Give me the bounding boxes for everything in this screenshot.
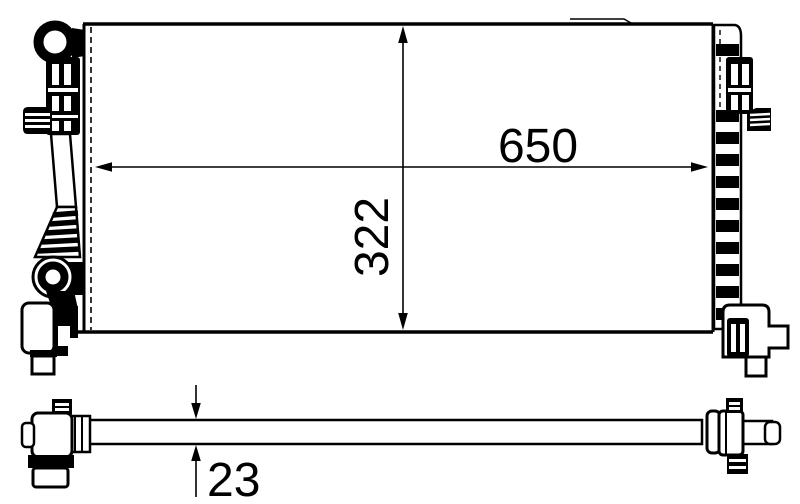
side-core-profile [88,420,702,444]
left-ribbed-clip [23,107,52,134]
right-upper-bracket [726,57,753,114]
dim-height: 322 [346,26,408,330]
left-channel [51,134,76,207]
right-foot-peg [746,357,766,376]
arrow-right-icon [691,162,708,172]
technical-drawing-canvas: 650 322 23 [0,0,800,504]
arrow-left-icon [95,162,112,172]
inlet-port [39,26,72,59]
radiator-core [75,19,713,332]
dim-width-label: 650 [498,120,578,173]
right-ribbed-tab [747,108,771,131]
left-mount-assembly [22,291,78,374]
side-left-fitting [22,399,90,487]
arrow-up-icon [191,445,201,461]
left-rib-section [35,207,80,257]
dim-thickness-label: 23 [207,454,260,504]
left-mount-foot [22,303,54,353]
dim-height-label: 322 [346,197,399,277]
side-view [22,398,780,487]
left-foot-peg [32,356,54,374]
right-tank [714,25,788,376]
side-right-fitting [707,398,780,474]
dim-width: 650 [95,120,708,173]
radiator-diagram: 650 322 23 [0,0,800,504]
right-mount-assembly [723,305,788,376]
arrow-down-icon [191,403,201,419]
arrow-down-icon [398,313,408,330]
left-tank-fittings [22,26,85,375]
arrow-up-icon [398,26,408,43]
